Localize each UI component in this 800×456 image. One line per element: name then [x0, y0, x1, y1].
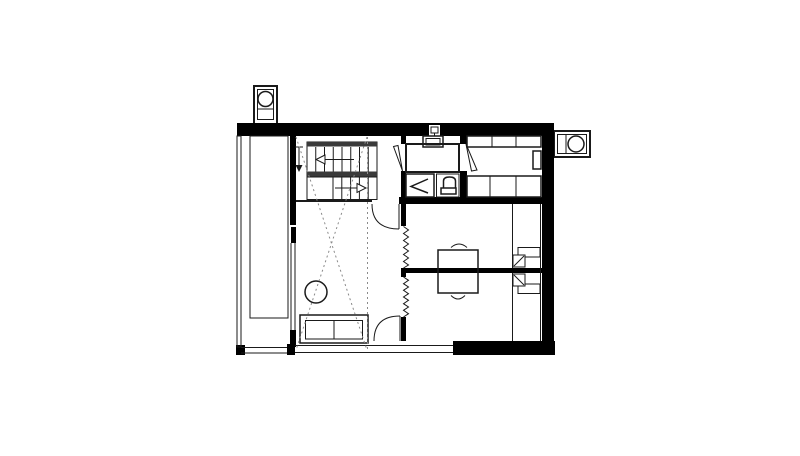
round-table	[305, 281, 327, 303]
bathtub	[406, 144, 459, 172]
balcony-deck	[250, 136, 288, 318]
living-room	[300, 281, 368, 343]
stair-arrow-upper	[316, 155, 354, 164]
balcony-west-rail	[237, 136, 241, 347]
kitchen-door-leaf	[466, 144, 477, 171]
kitchen-counter-north	[467, 136, 541, 147]
east-wall	[542, 136, 554, 342]
bathroom-door-leaf	[394, 146, 403, 172]
door-south	[374, 316, 400, 341]
chimney-top-left	[254, 86, 277, 124]
flue-box	[533, 151, 541, 169]
south-wall-solid	[453, 341, 555, 355]
balcony	[237, 136, 288, 353]
west-wall-block	[291, 227, 296, 243]
bedroom-divider-wall	[401, 268, 542, 273]
south-glazing	[295, 346, 453, 353]
sofa	[300, 315, 368, 343]
west-glazing	[291, 243, 295, 330]
folding-door-bedroom-2	[404, 277, 409, 317]
floor-plan-drawing	[0, 0, 800, 456]
floor-plan-canvas	[0, 0, 800, 456]
kitchen	[466, 136, 541, 197]
north-wall	[237, 123, 554, 136]
chair-arc-bedroom-1	[451, 244, 467, 248]
wall-under-bath-kitchen	[399, 197, 542, 204]
door-swings	[372, 204, 400, 341]
toilet	[437, 174, 460, 197]
wardrobe-steps-1	[513, 248, 540, 268]
chair-arc-bedroom-2	[451, 296, 465, 300]
balcony-post-se	[287, 344, 295, 355]
entry-arrow	[295, 147, 303, 172]
wardrobe-steps-2	[513, 274, 540, 294]
chimney-right	[554, 131, 590, 157]
kitchen-counter-south	[467, 176, 541, 197]
folding-door-bedroom-1	[404, 227, 409, 269]
exterior-walls	[236, 123, 555, 355]
shower	[406, 174, 434, 197]
door-stair-hall	[372, 204, 399, 229]
west-wall-upper	[290, 136, 296, 225]
